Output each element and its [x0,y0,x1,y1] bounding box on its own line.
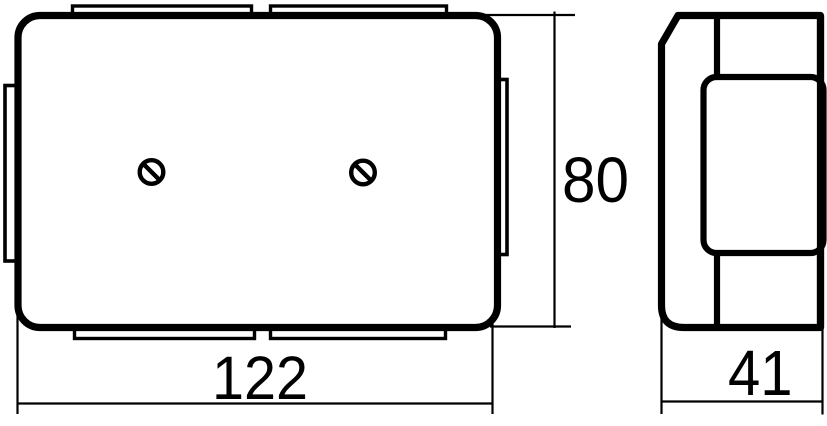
svg-text:80: 80 [562,144,629,216]
svg-text:41: 41 [728,337,793,409]
svg-text:122: 122 [212,344,308,412]
